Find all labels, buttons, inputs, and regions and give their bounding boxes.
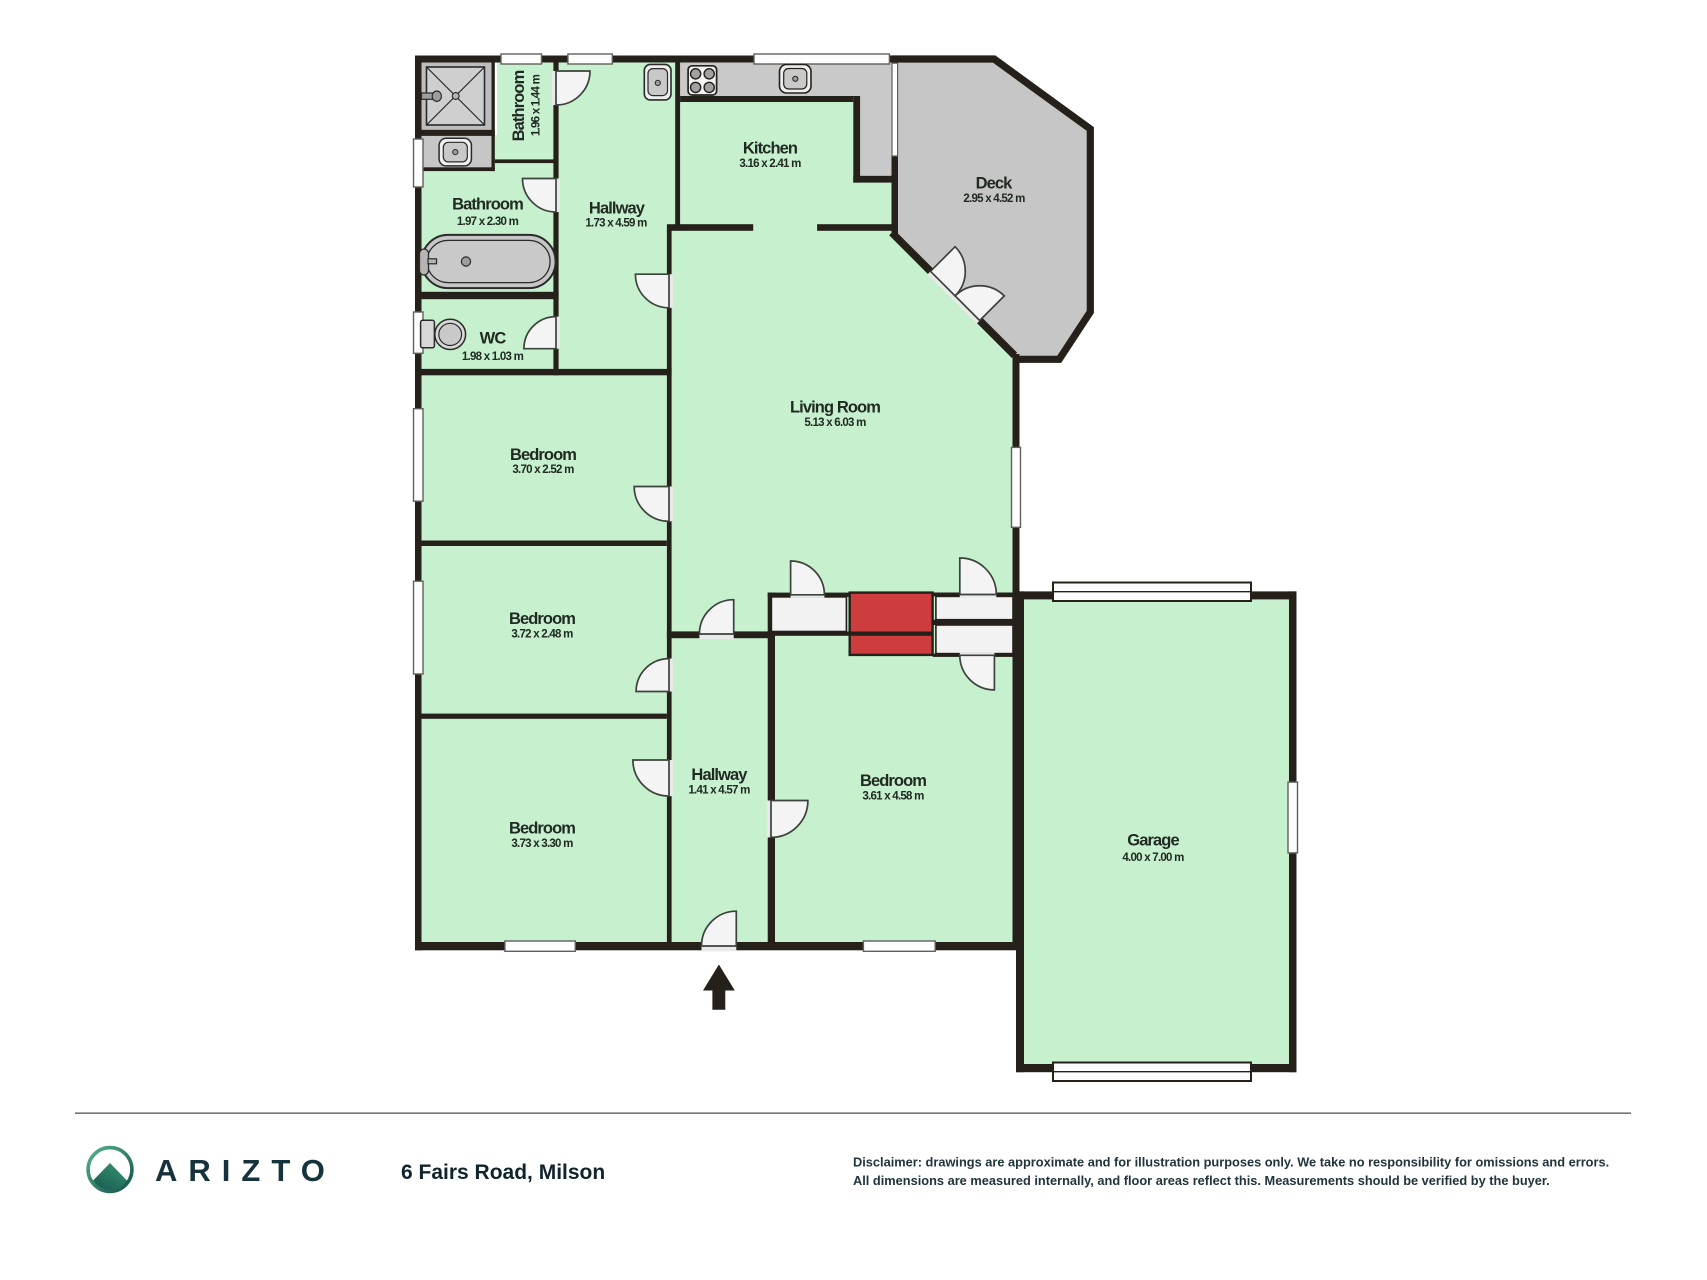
svg-text:1.41 x 4.57 m: 1.41 x 4.57 m <box>688 784 750 796</box>
svg-text:4.00 x 7.00 m: 4.00 x 7.00 m <box>1122 852 1184 864</box>
svg-text:3.61 x 4.58 m: 3.61 x 4.58 m <box>862 790 924 802</box>
svg-text:1.98 x 1.03 m: 1.98 x 1.03 m <box>462 351 524 363</box>
svg-text:Living Room: Living Room <box>790 399 880 417</box>
svg-text:Bedroom: Bedroom <box>509 820 575 838</box>
svg-text:All dimensions are measured in: All dimensions are measured internally, … <box>853 1173 1550 1188</box>
svg-text:Hallway: Hallway <box>589 200 646 218</box>
svg-text:3.72 x 2.48 m: 3.72 x 2.48 m <box>511 629 573 641</box>
svg-text:1.96 x 1.44 m: 1.96 x 1.44 m <box>531 74 543 136</box>
svg-text:Hallway: Hallway <box>691 766 748 784</box>
svg-text:Kitchen: Kitchen <box>743 140 798 158</box>
svg-text:Disclaimer: drawings are appro: Disclaimer: drawings are approximate and… <box>853 1155 1609 1170</box>
svg-text:WC: WC <box>480 330 507 348</box>
svg-text:ARIZTO: ARIZTO <box>155 1153 336 1188</box>
svg-text:Bedroom: Bedroom <box>509 610 575 628</box>
svg-text:2.95 x 4.52 m: 2.95 x 4.52 m <box>963 193 1025 205</box>
svg-text:3.70 x 2.52 m: 3.70 x 2.52 m <box>512 464 574 476</box>
svg-text:Deck: Deck <box>976 175 1014 193</box>
svg-text:Bedroom: Bedroom <box>860 772 926 790</box>
svg-text:3.16 x 2.41 m: 3.16 x 2.41 m <box>739 158 801 170</box>
svg-text:Bedroom: Bedroom <box>510 446 576 464</box>
svg-text:1.97 x 2.30 m: 1.97 x 2.30 m <box>457 216 519 228</box>
svg-text:6 Fairs Road, Milson: 6 Fairs Road, Milson <box>401 1161 605 1184</box>
svg-text:Bathroom: Bathroom <box>452 196 523 214</box>
svg-text:Bathroom: Bathroom <box>510 70 528 141</box>
svg-text:Garage: Garage <box>1127 832 1179 850</box>
svg-text:5.13 x 6.03 m: 5.13 x 6.03 m <box>804 417 866 429</box>
svg-text:3.73 x 3.30 m: 3.73 x 3.30 m <box>511 838 573 850</box>
svg-text:1.73 x 4.59 m: 1.73 x 4.59 m <box>585 218 647 230</box>
